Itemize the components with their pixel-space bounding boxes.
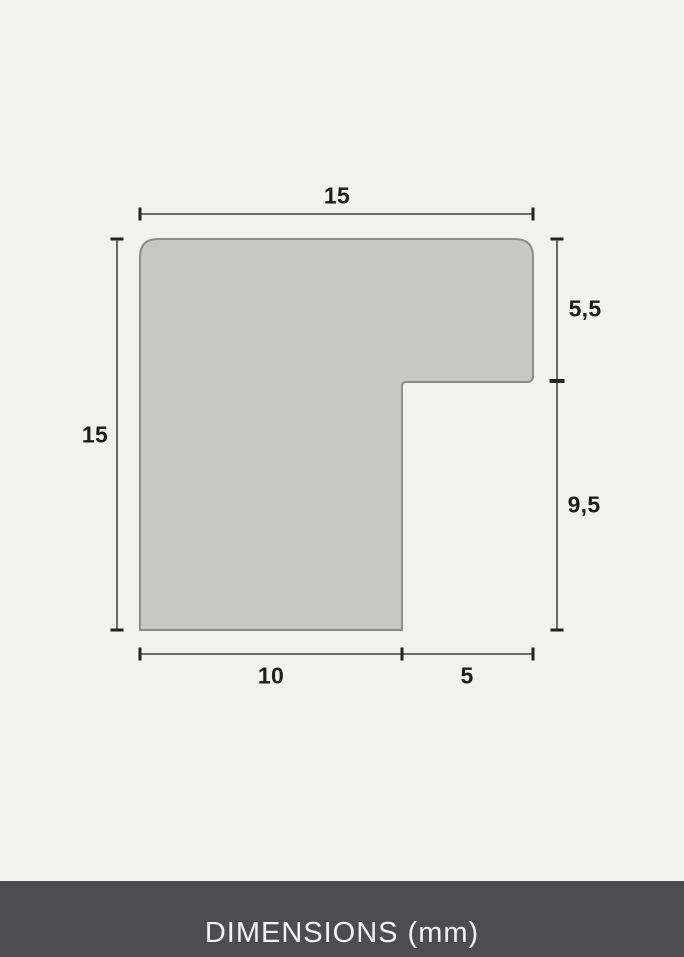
product-dimension-image: 15 15 5,5 9,5 10 5 DIMENSIONS (mm) [0,0,684,957]
dimension-label-bottom-left-width: 10 [258,665,284,688]
dimension-label-right-lower-depth: 9,5 [568,494,601,517]
footer-bar: DIMENSIONS (mm) [0,881,684,957]
footer-title: DIMENSIONS (mm) [205,919,479,948]
frame-profile-shape [140,239,533,630]
dimension-label-left-height: 15 [82,424,108,447]
dimension-label-top-width: 15 [324,185,350,208]
dimension-label-bottom-right-width: 5 [460,665,473,688]
dimension-label-right-upper-depth: 5,5 [569,298,602,321]
